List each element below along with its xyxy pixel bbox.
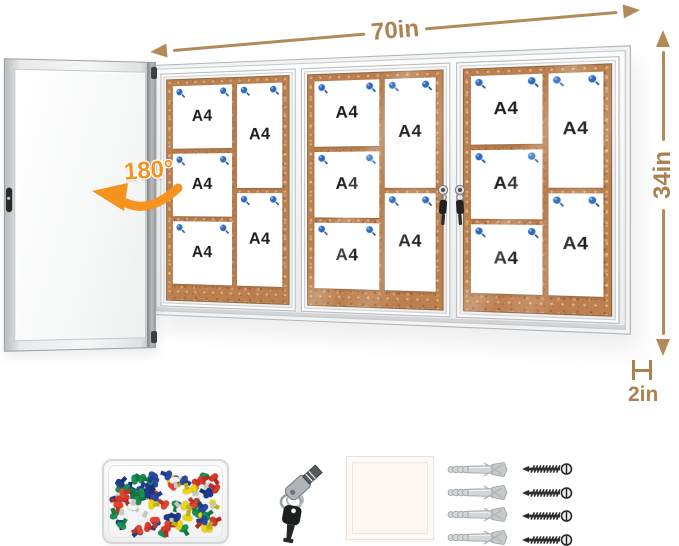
bulletin-board-product-diagram: A4 A4 A4 A4 A <box>0 0 679 546</box>
push-pin-icon <box>318 154 328 165</box>
a4-paper: A4 <box>315 79 380 147</box>
rotation-arrow-icon <box>86 178 186 220</box>
push-pin-icon <box>219 155 229 165</box>
push-pin-icon <box>421 80 432 91</box>
a4-paper: A4 <box>471 149 543 219</box>
wall-anchor-icon <box>446 484 512 501</box>
push-pin-icon <box>421 195 432 206</box>
wall-anchor-icon <box>446 529 512 546</box>
a4-paper: A4 <box>471 224 543 295</box>
push-pin-icon <box>176 88 186 98</box>
push-pin-icon <box>474 78 486 89</box>
paper-column-left: A4 A4 A4 <box>471 74 543 295</box>
paper-column-left: A4 A4 A4 <box>315 79 380 290</box>
push-pin-icon <box>388 195 399 206</box>
arrow-down-icon <box>656 339 670 356</box>
push-pin-icon <box>196 515 208 526</box>
cork-board: A4 A4 A4 A4 A <box>463 63 613 316</box>
depth-bracket-icon <box>632 360 652 380</box>
paper-size-label: A4 <box>563 234 589 255</box>
push-pin-icon <box>132 487 145 499</box>
paper-size-label: A4 <box>493 249 518 270</box>
a4-paper: A4 <box>385 77 435 187</box>
paper-size-label: A4 <box>336 103 359 123</box>
paper-column-right: A4 A4 <box>237 83 283 287</box>
wall-anchors <box>446 461 512 546</box>
mounting-pad <box>346 456 434 540</box>
paper-column-right: A4 A4 <box>548 72 603 297</box>
lock-with-key-icon <box>453 185 467 229</box>
cork-board: A4 A4 A4 A4 A <box>307 69 443 310</box>
mounting-screws <box>521 463 579 546</box>
paper-size-label: A4 <box>493 174 518 194</box>
lock-with-key-icon <box>436 185 450 229</box>
push-pin-icon <box>527 76 539 88</box>
arrow-left-icon <box>149 44 167 59</box>
push-pin-icon <box>176 223 186 233</box>
paper-size-label: A4 <box>249 230 271 249</box>
push-pin-icon <box>527 152 539 163</box>
push-pin-icon <box>130 524 144 537</box>
a4-paper: A4 <box>548 193 603 297</box>
push-pin-icon <box>318 225 328 236</box>
paper-column-right: A4 A4 <box>385 77 435 291</box>
depth-label: 2in <box>628 384 658 405</box>
paper-size-label: A4 <box>398 232 422 252</box>
paper-size-label: A4 <box>398 123 422 143</box>
door-lock <box>6 188 12 213</box>
paper-size-label: A4 <box>336 246 359 266</box>
arrow-right-icon <box>623 3 641 18</box>
paper-size-label: A4 <box>336 175 359 194</box>
screw-icon <box>521 487 577 499</box>
push-pin-icon <box>176 156 186 166</box>
push-pin-icon <box>269 85 279 96</box>
paper-size-label: A4 <box>192 107 213 126</box>
door-locks <box>436 185 468 231</box>
paper-size-label: A4 <box>493 99 518 120</box>
hinge-icon <box>151 331 157 343</box>
paper-size-label: A4 <box>192 244 213 263</box>
screw-icon <box>521 534 577 546</box>
push-pin-icon <box>587 74 599 86</box>
a4-paper: A4 <box>237 193 283 287</box>
push-pin-icon <box>474 152 486 163</box>
door-sections: A4 A4 A4 A4 A <box>160 56 619 324</box>
wall-anchor-icon <box>446 506 512 523</box>
push-pin-icon <box>366 225 377 236</box>
push-pin-icon <box>388 81 399 92</box>
push-pin-icon <box>474 227 486 238</box>
wall-anchor-icon <box>446 461 512 478</box>
a4-paper: A4 <box>385 193 435 292</box>
paper-size-label: A4 <box>249 126 271 145</box>
push-pin-icon <box>366 81 377 92</box>
height-label: 34in <box>651 151 675 199</box>
display-cabinet: A4 A4 A4 A4 A <box>152 45 631 335</box>
push-pin-icon <box>366 153 377 164</box>
a4-paper: A4 <box>173 221 232 285</box>
push-pins-box <box>102 459 229 544</box>
push-pin-icon <box>240 86 250 97</box>
dimension-line <box>662 51 665 141</box>
push-pin-icon <box>240 195 250 205</box>
screw-icon <box>521 463 577 475</box>
push-pin-icon <box>219 86 229 97</box>
a4-paper: A4 <box>173 84 232 148</box>
push-pin-icon <box>552 196 564 207</box>
push-pin-icon <box>527 227 539 238</box>
paper-size-label: A4 <box>192 176 213 194</box>
a4-paper: A4 <box>548 72 603 188</box>
a4-paper: A4 <box>237 83 283 188</box>
paper-size-label: A4 <box>563 120 589 141</box>
push-pin-icon <box>219 224 229 234</box>
width-label: 70in <box>370 17 420 45</box>
push-pin-icon <box>148 499 159 509</box>
push-pin-icon <box>150 517 160 528</box>
hinge-icon <box>151 67 157 79</box>
arrow-up-icon <box>656 30 670 47</box>
push-pin-icon <box>587 196 599 208</box>
push-pin-icon <box>269 195 279 205</box>
a4-paper: A4 <box>315 151 380 218</box>
keys-icon <box>266 452 344 546</box>
a4-paper: A4 <box>315 223 380 290</box>
push-pin-icon <box>552 75 564 87</box>
dimension-line <box>425 10 618 29</box>
push-pin-icon <box>112 501 124 514</box>
door-section: A4 A4 A4 A4 A <box>456 56 620 324</box>
screw-icon <box>521 510 577 522</box>
door-section: A4 A4 A4 A4 A <box>301 63 450 318</box>
push-pin-icon <box>318 83 328 94</box>
a4-paper: A4 <box>471 74 543 145</box>
dimension-line <box>662 209 665 335</box>
height-dimension: 34in <box>650 30 676 356</box>
dimension-line <box>173 32 366 51</box>
